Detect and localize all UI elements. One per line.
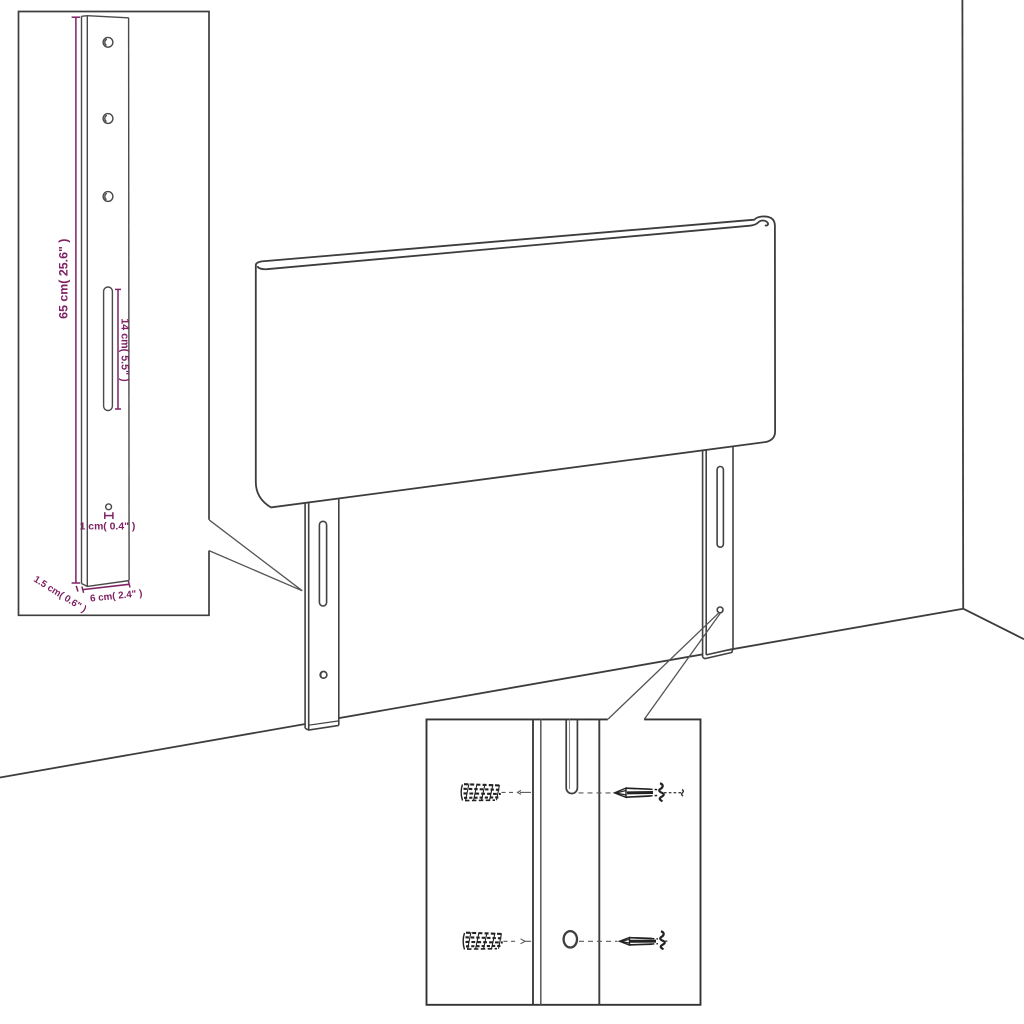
svg-text:14 cm( 5.5" ): 14 cm( 5.5" ) <box>119 318 131 382</box>
svg-text:1 cm( 0.4" ): 1 cm( 0.4" ) <box>80 522 136 533</box>
svg-text:65 cm( 25.6" ): 65 cm( 25.6" ) <box>56 239 70 319</box>
